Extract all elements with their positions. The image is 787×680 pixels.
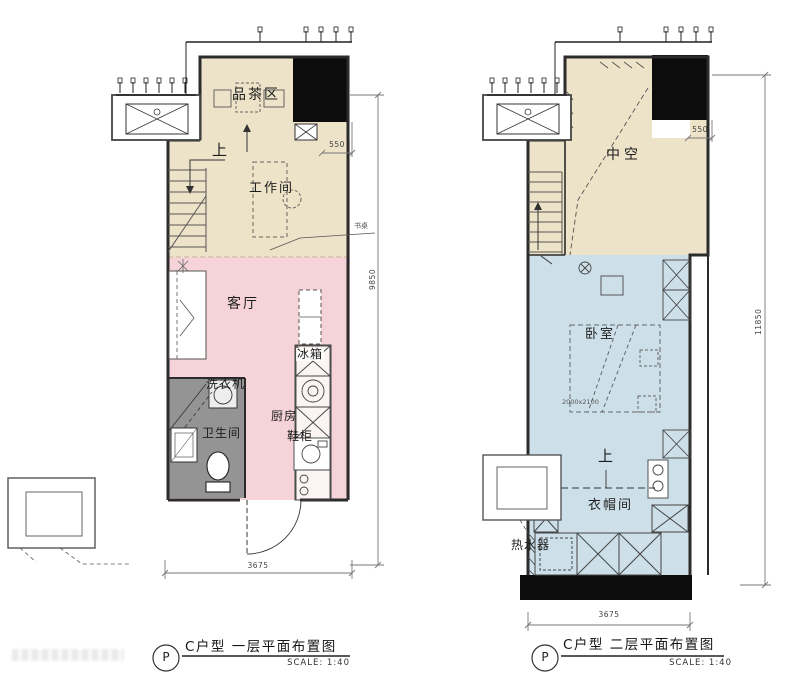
column-box	[295, 124, 317, 140]
first-floor-plan	[8, 27, 384, 671]
caption-scale-2f: SCALE: 1:40	[632, 659, 732, 668]
dim-3675-2f: 3675	[581, 611, 637, 619]
up-label-2f: 上	[598, 449, 615, 465]
living-room-label: 客厅	[227, 297, 259, 312]
fridge-label: 冰箱	[296, 348, 324, 361]
dim-3675-1f: 3675	[230, 562, 286, 570]
entry-door-icon	[247, 500, 301, 556]
up-label-1f: 上	[212, 143, 229, 159]
shaft-block-2f	[652, 55, 708, 120]
bedroom-area	[528, 255, 690, 575]
caption-scale-1f: SCALE: 1:40	[250, 659, 350, 668]
washing-machine-label: 洗衣机	[206, 378, 245, 391]
cloakroom-label: 衣帽间	[588, 499, 633, 513]
elevator-balcony	[112, 95, 200, 140]
shoe-cabinet-label: 鞋柜	[287, 430, 313, 443]
tea-area-label: 品茶区	[219, 88, 293, 103]
watermark	[12, 649, 124, 661]
floorplan-canvas	[0, 0, 787, 680]
workroom-label: 工作间	[249, 182, 294, 196]
water-heater-label: 热水器	[511, 539, 550, 552]
shaft-block	[293, 57, 348, 122]
railing-posts	[116, 78, 196, 95]
void-label: 中空	[606, 148, 642, 163]
dim-550-1f: 550	[322, 141, 352, 149]
dim-550-2f: 550	[685, 126, 715, 134]
bottom-wall-bar	[520, 575, 692, 600]
workroom-area	[168, 140, 350, 257]
caption-title-2f: C户型 二层平面布置图	[563, 638, 715, 652]
desk-note-label: 书桌	[354, 223, 368, 230]
dim-9850-1f: 9850	[369, 269, 377, 290]
toilet-icon	[206, 452, 230, 492]
bedroom-label: 卧室	[585, 328, 615, 342]
floor-plan-sheet: 品茶区 上 工作间 客厅 冰箱 洗衣机 卫生间 厨房 鞋柜 书桌 550 985…	[0, 0, 787, 680]
second-floor-plan	[483, 27, 771, 671]
caption-title-1f: C户型 一层平面布置图	[185, 640, 337, 654]
ac-platform	[8, 478, 130, 564]
bed-size-label: 2000x2100	[562, 399, 599, 406]
bathroom-sink-icon	[171, 428, 197, 462]
bathroom-label: 卫生间	[202, 427, 241, 440]
elevator-balcony-2f	[483, 95, 571, 140]
fridge-icon	[299, 290, 321, 344]
dim-11850-2f: 11850	[755, 309, 763, 335]
sofa-icon	[169, 271, 206, 359]
kitchen-label: 厨房	[271, 410, 297, 423]
caption-bubble-1f: P	[158, 651, 174, 664]
caption-bubble-2f: P	[537, 651, 553, 664]
stair-area-2f	[528, 140, 565, 255]
